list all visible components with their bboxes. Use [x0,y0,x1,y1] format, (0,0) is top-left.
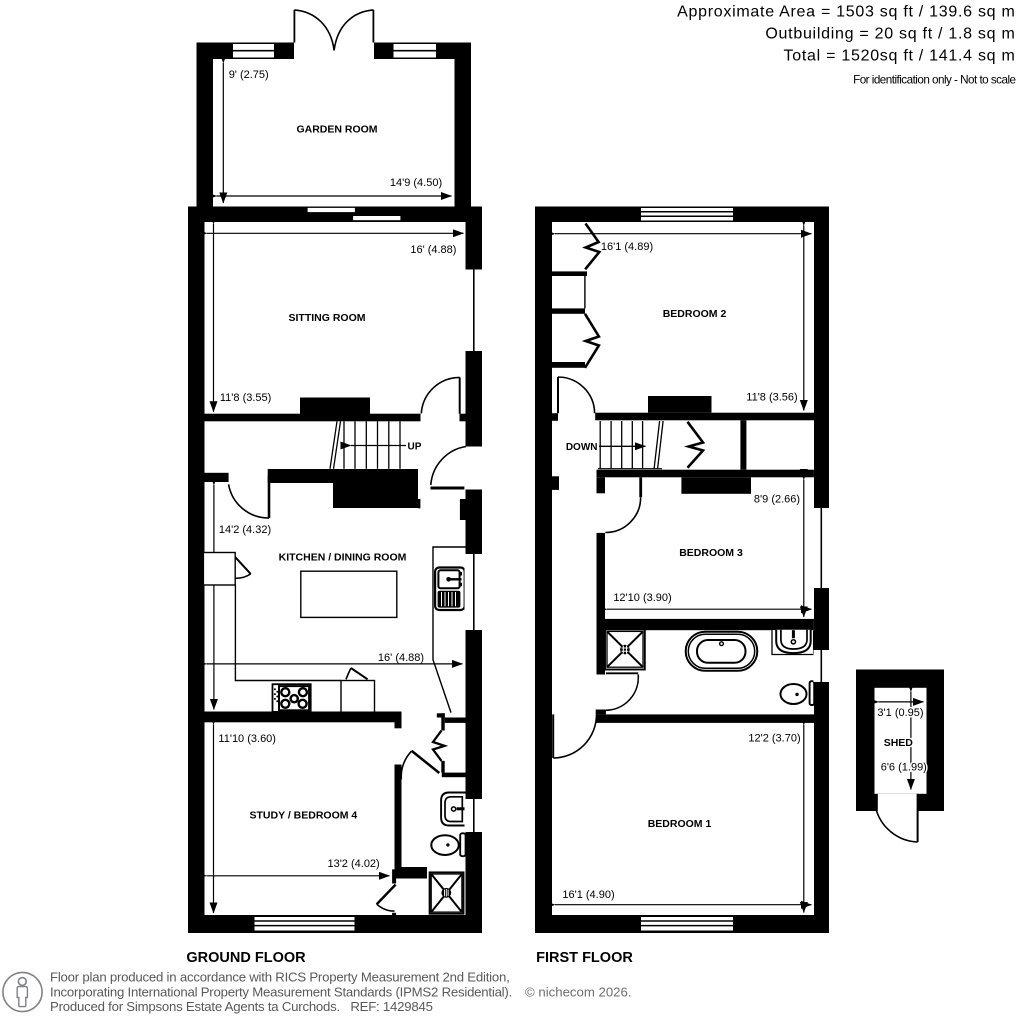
svg-text:GARDEN ROOM: GARDEN ROOM [296,124,377,136]
svg-text:For identification only - Not: For identification only - Not to scale [853,74,1015,87]
svg-text:Produced for Simpsons Estate A: Produced for Simpsons Estate Agents ta C… [50,999,433,1014]
svg-text:SITTING ROOM: SITTING ROOM [289,312,366,324]
svg-text:16'1 (4.89): 16'1 (4.89) [601,241,653,253]
svg-text:GROUND FLOOR: GROUND FLOOR [186,950,306,966]
svg-text:Incorporating International Pr: Incorporating International Property Mea… [50,985,512,1000]
svg-text:© nichecom 2026.: © nichecom 2026. [525,985,632,1000]
svg-text:13'2 (4.02): 13'2 (4.02) [327,858,379,870]
svg-text:SHED: SHED [884,737,914,749]
svg-text:3'1 (0.95): 3'1 (0.95) [877,707,923,719]
svg-text:16' (4.88): 16' (4.88) [410,244,456,256]
svg-text:9' (2.75): 9' (2.75) [229,69,269,81]
svg-text:12'10 (3.90): 12'10 (3.90) [613,592,671,604]
svg-text:16'1 (4.90): 16'1 (4.90) [562,889,614,901]
svg-text:16' (4.88): 16' (4.88) [378,652,424,664]
svg-text:Approximate Area = 1503 sq ft: Approximate Area = 1503 sq ft / 139.6 sq… [677,4,1015,21]
svg-text:Total = 1520sq ft / 141.4 sq m: Total = 1520sq ft / 141.4 sq m [784,48,1016,65]
svg-text:11'8 (3.56): 11'8 (3.56) [746,392,797,404]
svg-text:KITCHEN / DINING ROOM: KITCHEN / DINING ROOM [279,552,407,564]
svg-text:14'2 (4.32): 14'2 (4.32) [219,524,271,536]
svg-text:14'9 (4.50): 14'9 (4.50) [390,177,442,189]
svg-text:11'10 (3.60): 11'10 (3.60) [218,733,276,745]
svg-text:11'8 (3.55): 11'8 (3.55) [220,392,271,404]
svg-text:8'9 (2.66): 8'9 (2.66) [754,494,800,506]
svg-text:Floor plan produced in accorda: Floor plan produced in accordance with R… [50,970,510,985]
svg-text:DOWN: DOWN [566,442,598,453]
svg-text:STUDY / BEDROOM 4: STUDY / BEDROOM 4 [250,810,358,822]
svg-text:BEDROOM 3: BEDROOM 3 [679,547,743,559]
svg-text:BEDROOM 2: BEDROOM 2 [663,308,727,320]
svg-text:6'6 (1.99): 6'6 (1.99) [881,762,927,774]
svg-text:FIRST FLOOR: FIRST FLOOR [536,950,633,966]
svg-text:UP: UP [408,442,422,453]
svg-text:12'2 (3.70): 12'2 (3.70) [748,733,800,745]
svg-text:BEDROOM 1: BEDROOM 1 [648,818,712,830]
svg-text:Outbuilding = 20 sq ft / 1.8 s: Outbuilding = 20 sq ft / 1.8 sq m [765,26,1015,43]
